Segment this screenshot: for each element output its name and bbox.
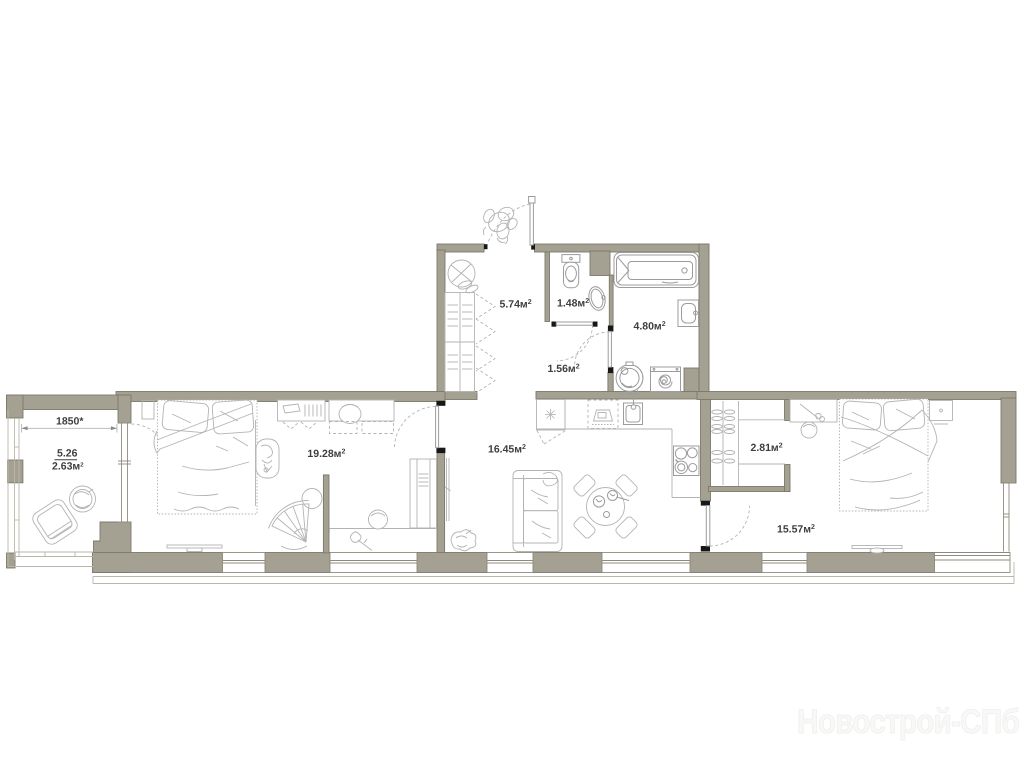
svg-text:5.74м2: 5.74м2 — [500, 299, 532, 311]
svg-text:15.57м2: 15.57м2 — [777, 524, 815, 536]
svg-text:1.56м2: 1.56м2 — [548, 363, 580, 375]
svg-text:19.28м2: 19.28м2 — [307, 448, 345, 460]
svg-text:4.80м2: 4.80м2 — [634, 321, 666, 333]
svg-text:2.81м2: 2.81м2 — [751, 442, 783, 454]
svg-text:2.63м2: 2.63м2 — [52, 461, 84, 473]
svg-text:1.48м2: 1.48м2 — [557, 298, 589, 310]
svg-text:5.26: 5.26 — [57, 448, 78, 460]
svg-text:1850*: 1850* — [56, 416, 84, 428]
svg-text:16.45м2: 16.45м2 — [488, 444, 526, 456]
svg-text:Новострой-СПб: Новострой-СПб — [797, 702, 1019, 740]
